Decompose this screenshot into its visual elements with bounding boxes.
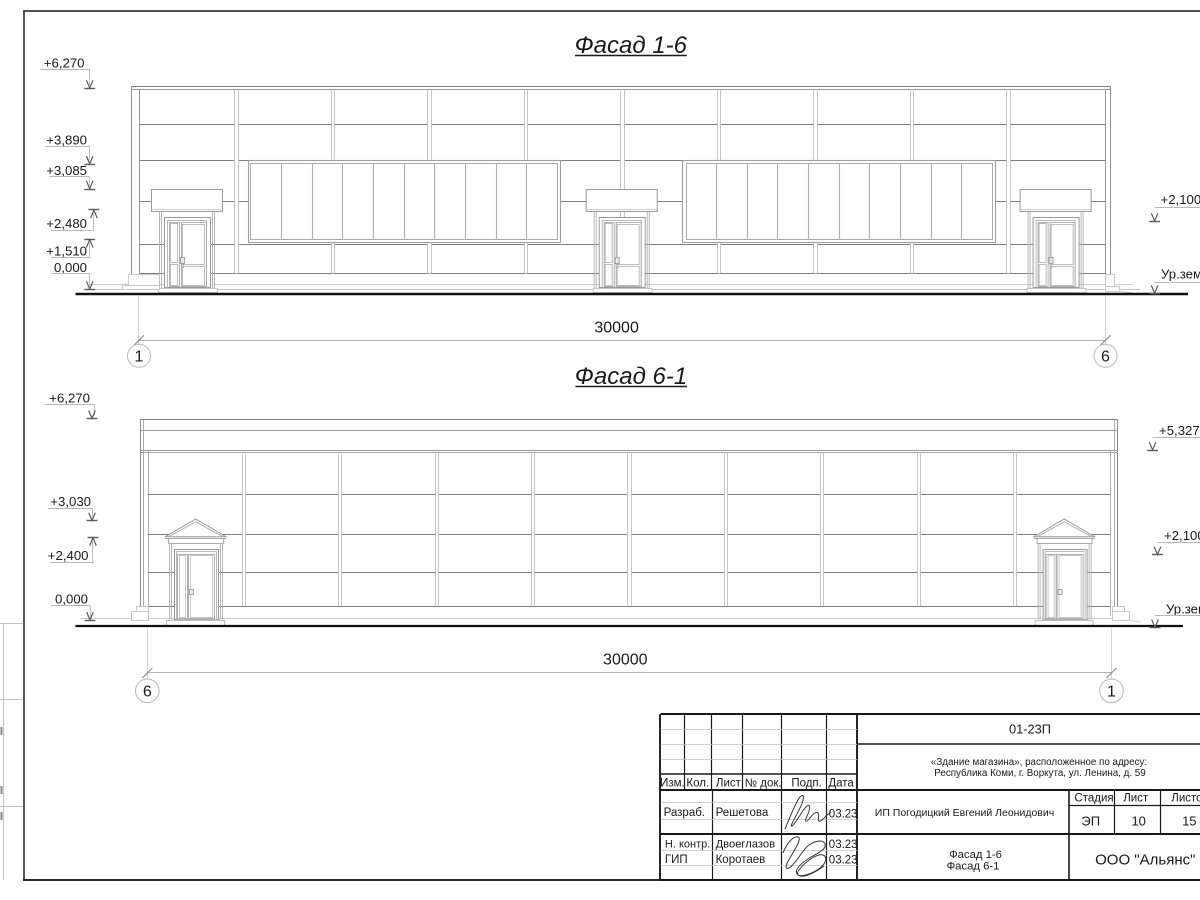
svg-text:Лист: Лист [716,778,742,790]
svg-text:Подп.: Подп. [791,778,822,790]
svg-text:ООО "Альянс": ООО "Альянс" [1095,852,1195,869]
svg-text:Фасад 1-6: Фасад 1-6 [949,849,1002,861]
svg-text:0,000: 0,000 [54,260,87,275]
svg-text:+1,510: +1,510 [46,244,87,259]
svg-text:01-23П: 01-23П [1009,722,1051,737]
svg-text:Двоеглазов: Двоеглазов [716,839,776,851]
svg-text:+2,480: +2,480 [46,216,87,231]
svg-text:Изм.: Изм. [660,778,685,790]
svg-text:ИП Погодицкий Евгений Леонидов: ИП Погодицкий Евгений Леонидович [875,807,1054,819]
svg-text:«Здание магазина», расположенн: «Здание магазина», расположенное по адре… [931,757,1147,768]
svg-text:Коротаев: Коротаев [716,854,766,866]
svg-text:Кол.: Кол. [686,778,709,790]
svg-text:03.23: 03.23 [829,839,858,851]
svg-text:+2,400: +2,400 [48,548,89,563]
svg-text:03.23: 03.23 [829,809,858,821]
svg-text:+6,270: +6,270 [44,56,85,71]
svg-text:+6,270: +6,270 [49,391,90,406]
svg-text:+2,100: +2,100 [1161,192,1200,207]
svg-text:Фасад 6-1: Фасад 6-1 [947,860,1000,872]
svg-text:1: 1 [1107,683,1116,700]
svg-text:30000: 30000 [603,652,648,669]
svg-text:Н. контр.: Н. контр. [665,839,710,851]
svg-text:Листов: Листов [1171,792,1200,804]
svg-text:15: 15 [1182,814,1196,829]
svg-text:Стадия: Стадия [1074,792,1113,804]
svg-text:Решетова: Решетова [716,807,769,819]
svg-text:ЭП: ЭП [1081,814,1100,829]
svg-text:Разраб.: Разраб. [664,807,705,819]
svg-text:+3,890: +3,890 [46,133,87,148]
svg-text:№ док.: № док. [745,778,782,790]
svg-text:+3,030: +3,030 [50,494,91,509]
svg-text:6: 6 [143,683,152,700]
svg-text:Дата: Дата [828,778,854,790]
svg-text:Республика Коми, г. Воркута, у: Республика Коми, г. Воркута, ул. Ленина,… [934,768,1145,779]
svg-text:0,000: 0,000 [55,592,88,607]
svg-text:+3,085: +3,085 [46,163,87,178]
svg-text:03.23: 03.23 [829,855,858,867]
svg-text:Ур.земли: Ур.земли [1161,266,1200,281]
svg-text:+5,327: +5,327 [1159,423,1200,438]
svg-text:1: 1 [135,348,144,365]
svg-text:+2,100: +2,100 [1164,528,1200,543]
svg-text:ГИП: ГИП [665,854,688,866]
svg-text:Лист: Лист [1123,792,1149,804]
svg-text:Ур.земли: Ур.земли [1166,602,1200,617]
svg-text:10: 10 [1131,814,1145,829]
svg-text:6: 6 [1101,348,1110,365]
svg-text:30000: 30000 [594,319,639,336]
